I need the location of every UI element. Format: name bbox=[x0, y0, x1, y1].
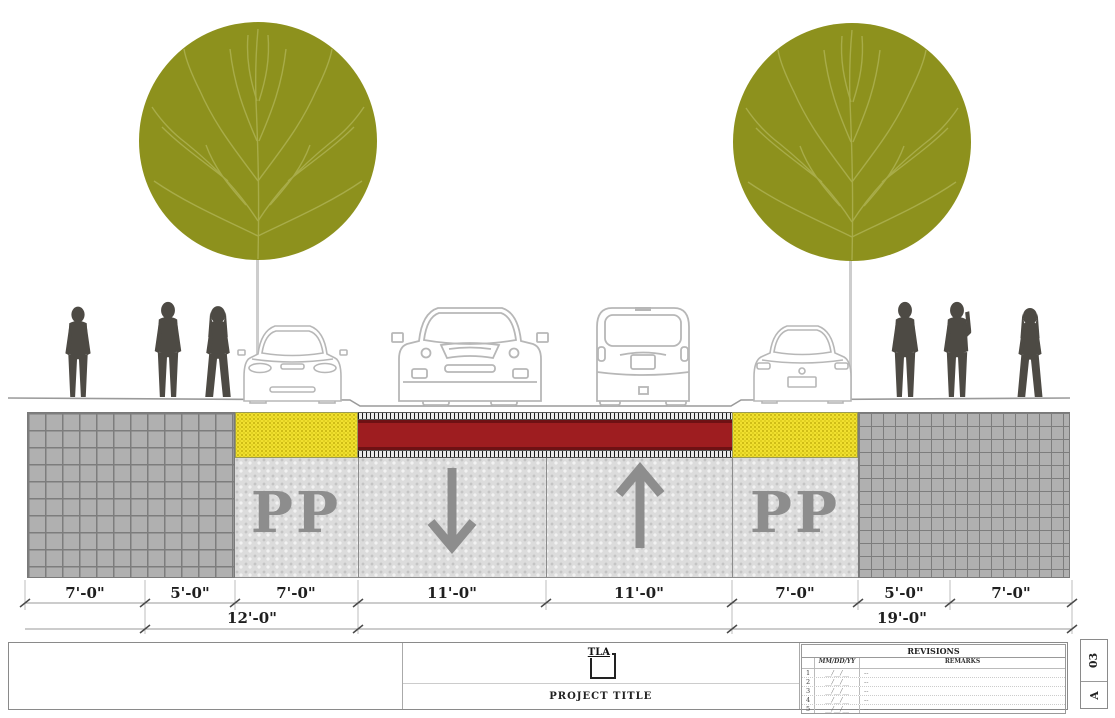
pedestrian bbox=[205, 306, 230, 397]
lane-divider-line bbox=[358, 458, 359, 578]
lane-divider-line bbox=[546, 458, 547, 578]
pedestrian bbox=[892, 302, 919, 397]
logo-row: TLA bbox=[403, 643, 800, 684]
revisions-header-row: MM/DD/YY REMARKS bbox=[802, 658, 1065, 669]
tree-trunk-left bbox=[256, 245, 259, 399]
revisions-table-inner: REVISIONS MM/DD/YY REMARKS 1 __/__/__ --… bbox=[801, 644, 1066, 714]
revision-remarks: -- bbox=[860, 669, 1065, 677]
revision-date: __/__/__ bbox=[815, 678, 860, 686]
sheet-number-box: 03 A bbox=[1080, 639, 1108, 709]
dim-sidewalk-left: 7'-0" bbox=[65, 584, 105, 602]
revisions-date-header: MM/DD/YY bbox=[815, 658, 860, 668]
pavement-hatch-top bbox=[358, 412, 732, 420]
sidewalk-section-left bbox=[27, 412, 235, 578]
dim-planting-left: 5'-0" bbox=[170, 584, 210, 602]
project-title: PROJECT TITLE bbox=[403, 684, 800, 709]
dim-span-right-total: 19'-0" bbox=[877, 609, 927, 627]
title-block-notes-cell bbox=[9, 643, 403, 709]
revisions-title: REVISIONS bbox=[802, 645, 1065, 658]
tree-trunk-right bbox=[849, 245, 852, 399]
revisions-remarks-header: REMARKS bbox=[860, 658, 1065, 668]
revision-row: 3 __/__/__ -- bbox=[802, 687, 1065, 696]
pedestrian bbox=[944, 302, 972, 397]
revision-row: 5 __/__/__ -- bbox=[802, 705, 1065, 713]
street-tree-right bbox=[733, 23, 971, 261]
parked-car-left bbox=[238, 326, 347, 403]
dim-sidewalk-right: 7'-0" bbox=[991, 584, 1031, 602]
firm-logo: TLA bbox=[588, 650, 614, 676]
sheet-revision-letter: A bbox=[1087, 691, 1100, 700]
pavement-hatch-bottom bbox=[358, 450, 732, 458]
dim-planting-right: 5'-0" bbox=[884, 584, 924, 602]
roadway-pavement-band bbox=[358, 412, 732, 458]
dim-lane-up: 11'-0" bbox=[614, 584, 664, 602]
ground-line bbox=[8, 398, 1070, 406]
sheet-revision-cell: A bbox=[1081, 682, 1107, 708]
revision-num: 3 bbox=[802, 687, 815, 695]
pedestrian bbox=[155, 302, 182, 397]
revision-num: 5 bbox=[802, 705, 815, 713]
sidewalk-section-right bbox=[858, 412, 1070, 578]
sheet-number: 03 bbox=[1088, 653, 1101, 668]
street-tree-left bbox=[139, 22, 377, 260]
revision-remarks: -- bbox=[860, 687, 1065, 695]
logo-subtext bbox=[589, 658, 590, 662]
revision-num: 4 bbox=[802, 696, 815, 704]
lane-divider-line bbox=[732, 458, 733, 578]
revision-remarks: -- bbox=[860, 678, 1065, 686]
pedestrian bbox=[1018, 308, 1043, 397]
parking-lane-label-left: PP bbox=[251, 480, 341, 546]
pavement-red-core bbox=[358, 420, 732, 450]
title-block-center-cell: TLA PROJECT TITLE bbox=[403, 643, 801, 709]
revision-remarks: -- bbox=[860, 705, 1065, 713]
parked-car-right bbox=[754, 326, 851, 403]
revision-row: 2 __/__/__ -- bbox=[802, 678, 1065, 687]
dim-parking-right: 7'-0" bbox=[775, 584, 815, 602]
revision-remarks: -- bbox=[860, 696, 1065, 704]
revision-date: __/__/__ bbox=[815, 696, 860, 704]
parking-surface-left bbox=[235, 412, 358, 458]
dim-lane-down: 11'-0" bbox=[427, 584, 477, 602]
revision-row: 1 __/__/__ -- bbox=[802, 669, 1065, 678]
revision-date: __/__/__ bbox=[815, 705, 860, 713]
drawing-art-layer bbox=[0, 0, 1115, 718]
dim-span-left-total: 12'-0" bbox=[227, 609, 277, 627]
revision-num: 2 bbox=[802, 678, 815, 686]
logo-text: TLA bbox=[588, 648, 612, 658]
parking-lane-label-right: PP bbox=[750, 480, 840, 546]
revisions-num-header bbox=[802, 658, 815, 668]
truck-lane-down bbox=[392, 308, 548, 405]
title-block: TLA PROJECT TITLE REVISIONS MM/DD/YY REM… bbox=[8, 642, 1068, 710]
revision-row: 4 __/__/__ -- bbox=[802, 696, 1065, 705]
pedestrian bbox=[65, 307, 90, 397]
revision-date: __/__/__ bbox=[815, 669, 860, 677]
street-section-sheet: { "section": { "parking_label_left": "PP… bbox=[0, 0, 1115, 718]
revision-date: __/__/__ bbox=[815, 687, 860, 695]
suv-lane-up bbox=[597, 307, 689, 405]
sheet-number-cell: 03 bbox=[1081, 640, 1107, 682]
revisions-table: REVISIONS MM/DD/YY REMARKS 1 __/__/__ --… bbox=[800, 643, 1067, 709]
dim-parking-left: 7'-0" bbox=[276, 584, 316, 602]
revision-num: 1 bbox=[802, 669, 815, 677]
parking-surface-right bbox=[732, 412, 858, 458]
